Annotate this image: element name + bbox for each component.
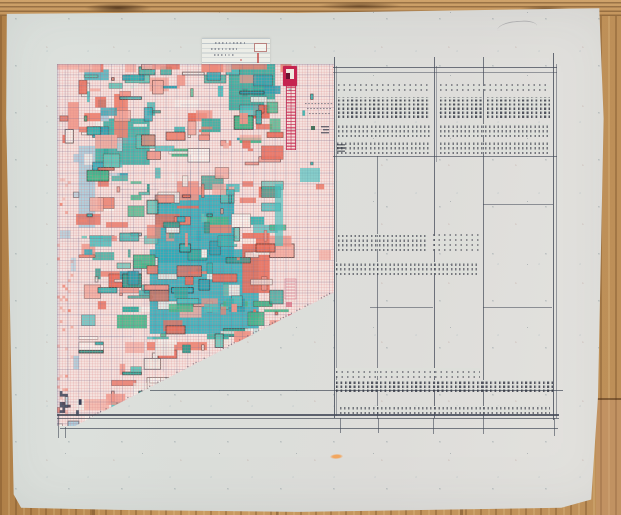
table-tick-mark: [65, 427, 66, 438]
handwriting-band: [338, 234, 428, 251]
table-tick-mark: [554, 418, 555, 436]
table-tick-mark: [483, 418, 484, 434]
table-vertical-rule: [334, 57, 335, 418]
handwriting-band: [338, 84, 428, 91]
table-vertical-rule: [436, 66, 437, 162]
table-horizontal-rule: [333, 156, 557, 157]
handwriting-band: [337, 142, 430, 154]
photo-scene: [0, 0, 621, 515]
handwriting-band: [336, 380, 553, 392]
table-layer: [0, 0, 621, 515]
handwriting-band: [440, 142, 550, 154]
table-vertical-rule: [556, 64, 557, 418]
handwriting-band: [338, 97, 430, 118]
handwriting-lead-mark: [337, 143, 345, 152]
table-horizontal-rule: [333, 67, 557, 68]
handwriting-band: [433, 234, 480, 251]
table-tick-mark: [433, 418, 434, 434]
handwriting-band: [340, 406, 550, 414]
handwriting-band: [338, 124, 430, 137]
handwriting-band: [440, 124, 550, 137]
table-tick-mark: [378, 418, 379, 433]
table-horizontal-rule: [57, 414, 559, 416]
table-horizontal-rule: [483, 204, 553, 205]
handwriting-band: [336, 368, 480, 378]
handwriting-band: [440, 97, 482, 118]
table-horizontal-rule: [333, 72, 557, 73]
table-tick-mark: [58, 414, 59, 438]
table-vertical-rule: [483, 57, 484, 418]
table-vertical-rule: [553, 53, 554, 420]
handwriting-band: [336, 262, 477, 275]
table-horizontal-rule: [483, 307, 552, 308]
handwriting-band: [440, 84, 550, 91]
table-vertical-rule: [336, 66, 337, 416]
handwriting-band: [487, 97, 550, 118]
table-tick-mark: [340, 418, 341, 433]
table-horizontal-rule: [370, 307, 433, 308]
